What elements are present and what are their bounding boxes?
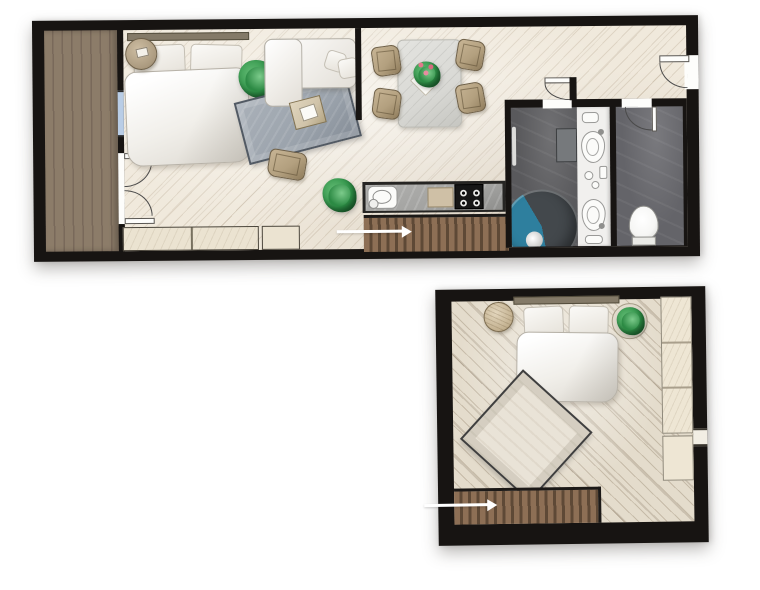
bench-short: [262, 226, 300, 250]
towel-rail: [512, 127, 516, 166]
centerpiece-flowers: [418, 62, 423, 67]
toilet-tank: [632, 236, 656, 245]
sink-basin-2: [587, 206, 600, 224]
balcony-wall-segment: [118, 137, 124, 153]
partition-wall: [355, 28, 362, 120]
dining-chair: [454, 81, 487, 116]
faucet-2: [599, 223, 605, 229]
floor-plan-screenshot: { "document": { "type": "apartment floor…: [0, 0, 760, 590]
main-floor-plan: [32, 15, 700, 262]
wc-door-leaf: [652, 106, 657, 131]
bench-divider: [191, 228, 193, 250]
staircase-main: [364, 214, 509, 252]
bathroom-door-opening: [543, 99, 572, 108]
upper-floor-plan: [435, 286, 709, 546]
vanity-accessory: [584, 171, 593, 180]
kitchen-faucet: [369, 199, 379, 209]
cutting-board: [427, 187, 453, 207]
shower-shelf: [556, 128, 577, 162]
bed-duvet: [124, 67, 252, 167]
wardrobe-divider: [662, 341, 691, 343]
vanity-accessory: [591, 181, 599, 189]
upper-window: [693, 428, 707, 446]
balcony-deck: [44, 30, 119, 252]
wardrobe-lower: [662, 435, 694, 480]
sofa-chaise: [264, 39, 303, 107]
toilet-bowl: [629, 205, 659, 239]
french-door-leaf-bottom: [125, 218, 155, 224]
cooktop: [454, 184, 483, 209]
sink-basin-1: [586, 138, 599, 156]
dining-chair: [371, 87, 403, 120]
balcony-wall-segment: [117, 30, 124, 90]
dining-chair: [370, 44, 402, 78]
bedroom-window: [118, 90, 124, 137]
vanity-tray: [585, 235, 603, 244]
stair-direction-arrow: [337, 230, 403, 234]
faucet-1: [598, 129, 604, 135]
hallway-wall-stub: [569, 77, 576, 100]
vanity-tray: [582, 112, 599, 123]
round-shower: [511, 189, 578, 247]
wardrobe-upper: [660, 296, 693, 433]
shower-room-floor: [511, 107, 578, 247]
wardrobe-divider: [663, 386, 692, 388]
shower-head: [526, 231, 543, 246]
bed-headboard: [513, 295, 619, 304]
vanity-accessory: [599, 166, 607, 179]
dining-chair: [454, 38, 487, 72]
